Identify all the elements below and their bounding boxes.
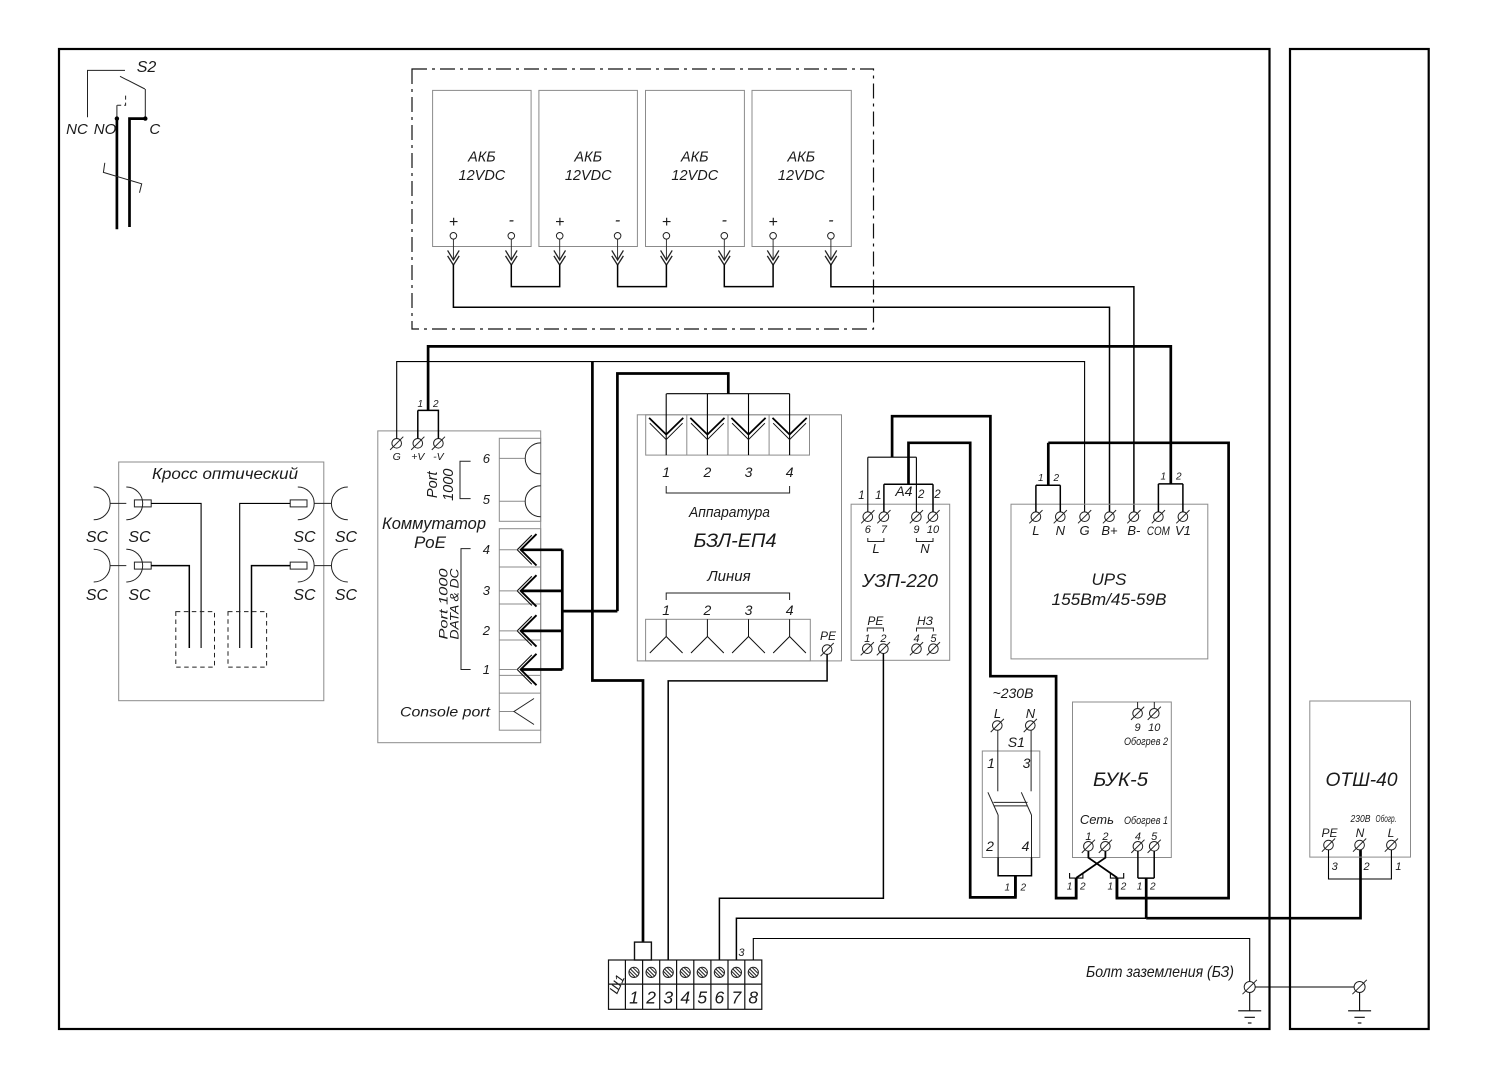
svg-text:N: N <box>1026 706 1036 721</box>
svg-text:БЗЛ-ЕП4: БЗЛ-ЕП4 <box>694 531 777 552</box>
svg-text:-: - <box>615 212 620 229</box>
svg-text:1: 1 <box>1395 861 1401 873</box>
svg-text:PE: PE <box>820 629 837 643</box>
svg-text:Сеть: Сеть <box>1080 812 1114 827</box>
svg-text:~230В: ~230В <box>993 685 1034 701</box>
svg-text:АКБ: АКБ <box>467 150 496 166</box>
svg-text:5: 5 <box>483 492 491 507</box>
svg-text:2: 2 <box>432 399 439 410</box>
svg-text:А4: А4 <box>894 483 912 499</box>
svg-text:S2: S2 <box>137 59 157 76</box>
svg-text:1: 1 <box>1004 883 1010 894</box>
svg-text:2: 2 <box>482 623 491 638</box>
svg-text:3: 3 <box>1332 861 1339 873</box>
svg-text:6: 6 <box>483 451 491 466</box>
svg-text:Болт заземления (БЗ): Болт заземления (БЗ) <box>1086 964 1234 981</box>
svg-text:2: 2 <box>1079 882 1086 893</box>
svg-text:SC: SC <box>86 587 109 604</box>
svg-text:3: 3 <box>738 947 745 959</box>
svg-text:АКБ: АКБ <box>680 150 709 166</box>
svg-text:2: 2 <box>917 489 925 501</box>
svg-text:NC: NC <box>66 121 88 138</box>
svg-text:L: L <box>872 541 879 556</box>
svg-text:G: G <box>1080 523 1090 538</box>
svg-text:2: 2 <box>1175 472 1182 483</box>
svg-text:1: 1 <box>662 464 670 480</box>
svg-text:2: 2 <box>879 633 886 645</box>
svg-text:Коммутатор: Коммутатор <box>382 514 486 533</box>
svg-text:PE: PE <box>1321 826 1338 840</box>
svg-text:УЗП-220: УЗП-220 <box>861 571 938 591</box>
svg-text:Аппаратура: Аппаратура <box>688 504 770 521</box>
svg-text:-: - <box>509 212 514 229</box>
svg-text:2: 2 <box>985 838 994 854</box>
svg-text:COM: COM <box>1147 524 1170 538</box>
svg-text:1: 1 <box>1038 473 1044 484</box>
svg-text:NO: NO <box>94 121 117 138</box>
svg-text:2: 2 <box>1120 882 1127 893</box>
svg-text:Обогрев 1: Обогрев 1 <box>1124 815 1168 827</box>
svg-text:5: 5 <box>697 988 707 1008</box>
svg-text:4: 4 <box>483 542 490 557</box>
svg-text:L: L <box>994 706 1001 721</box>
svg-text:B+: B+ <box>1101 523 1118 538</box>
svg-text:НЗ: НЗ <box>917 614 934 628</box>
svg-text:4: 4 <box>1022 838 1030 854</box>
svg-text:UPS: UPS <box>1092 570 1128 589</box>
svg-text:230В: 230В <box>1350 814 1371 825</box>
svg-text:2: 2 <box>1053 473 1060 484</box>
svg-text:9: 9 <box>913 524 919 536</box>
svg-text:155Вт/45-59В: 155Вт/45-59В <box>1052 590 1167 609</box>
svg-text:12VDC: 12VDC <box>565 168 612 184</box>
svg-text:1: 1 <box>858 490 864 502</box>
svg-text:3: 3 <box>745 464 753 480</box>
svg-text:6: 6 <box>715 988 725 1008</box>
svg-text:2: 2 <box>645 988 656 1008</box>
svg-text:Port 1000DATA & DC: Port 1000DATA & DC <box>437 568 462 639</box>
svg-text:SC: SC <box>335 587 358 604</box>
svg-text:1: 1 <box>1107 882 1113 893</box>
svg-text:C: C <box>149 121 160 138</box>
svg-text:Кросс оптический: Кросс оптический <box>152 466 298 483</box>
svg-text:S1: S1 <box>1008 734 1025 750</box>
svg-text:SC: SC <box>335 529 358 546</box>
svg-text:SC: SC <box>86 529 109 546</box>
svg-text:+: + <box>555 214 564 231</box>
svg-text:4: 4 <box>913 633 919 645</box>
svg-text:2: 2 <box>703 602 712 618</box>
svg-text:SC: SC <box>293 529 316 546</box>
svg-text:Console port: Console port <box>400 705 491 720</box>
svg-text:4: 4 <box>786 464 794 480</box>
svg-text:Обогр.: Обогр. <box>1376 813 1397 825</box>
svg-text:7: 7 <box>732 988 743 1008</box>
svg-text:-: - <box>828 212 833 229</box>
svg-text:1: 1 <box>1160 472 1166 483</box>
svg-text:3: 3 <box>483 583 491 598</box>
svg-text:Обогрев 2: Обогрев 2 <box>1124 736 1168 748</box>
svg-text:БУК-5: БУК-5 <box>1093 770 1148 791</box>
svg-text:3: 3 <box>663 988 673 1008</box>
svg-text:L: L <box>1032 523 1039 538</box>
svg-text:Линия: Линия <box>706 568 750 585</box>
svg-text:2: 2 <box>1362 861 1369 873</box>
svg-text:N: N <box>1356 826 1365 840</box>
svg-text:10: 10 <box>927 524 940 536</box>
svg-text:4: 4 <box>786 602 794 618</box>
svg-text:SC: SC <box>128 587 151 604</box>
svg-text:3: 3 <box>745 602 753 618</box>
svg-text:G: G <box>393 451 401 463</box>
svg-text:+V: +V <box>411 451 425 463</box>
svg-text:4: 4 <box>680 988 690 1008</box>
svg-text:1: 1 <box>483 662 490 677</box>
svg-text:3: 3 <box>1023 755 1031 771</box>
svg-text:6: 6 <box>865 524 872 536</box>
svg-text:9: 9 <box>1135 722 1141 734</box>
svg-text:-: - <box>722 212 727 229</box>
svg-text:АКБ: АКБ <box>786 150 815 166</box>
svg-text:1: 1 <box>864 633 870 645</box>
svg-text:ОТШ-40: ОТШ-40 <box>1326 770 1398 791</box>
svg-text:8: 8 <box>748 988 758 1008</box>
svg-text:-V: -V <box>433 451 444 463</box>
svg-text:12VDC: 12VDC <box>671 168 718 184</box>
svg-text:N: N <box>920 541 930 556</box>
svg-text:+: + <box>768 214 777 231</box>
svg-text:1: 1 <box>1137 882 1143 893</box>
svg-text:1: 1 <box>417 399 423 410</box>
svg-text:1: 1 <box>987 755 995 771</box>
svg-text:2: 2 <box>1020 883 1027 894</box>
svg-text:10: 10 <box>1148 722 1161 734</box>
svg-text:2: 2 <box>1149 882 1156 893</box>
svg-text:+: + <box>449 214 458 231</box>
svg-text:PE: PE <box>867 614 884 628</box>
svg-text:V1: V1 <box>1175 523 1191 538</box>
svg-text:1: 1 <box>629 988 639 1008</box>
svg-text:12VDC: 12VDC <box>459 168 506 184</box>
svg-text:1: 1 <box>1067 882 1073 893</box>
svg-text:2: 2 <box>933 489 941 501</box>
svg-text:+: + <box>662 214 671 231</box>
svg-text:N: N <box>1056 523 1066 538</box>
svg-text:2: 2 <box>703 464 712 480</box>
svg-text:L: L <box>1388 826 1395 840</box>
svg-text:АКБ: АКБ <box>573 150 602 166</box>
svg-text:SC: SC <box>293 587 316 604</box>
svg-text:1: 1 <box>662 602 670 618</box>
svg-text:SC: SC <box>128 529 151 546</box>
svg-text:7: 7 <box>881 524 888 536</box>
svg-text:B-: B- <box>1127 523 1141 538</box>
svg-text:1: 1 <box>875 490 881 502</box>
svg-text:Port1000: Port1000 <box>425 469 457 501</box>
svg-text:12VDC: 12VDC <box>778 168 825 184</box>
svg-text:РоЕ: РоЕ <box>414 533 447 552</box>
svg-text:5: 5 <box>930 633 937 645</box>
